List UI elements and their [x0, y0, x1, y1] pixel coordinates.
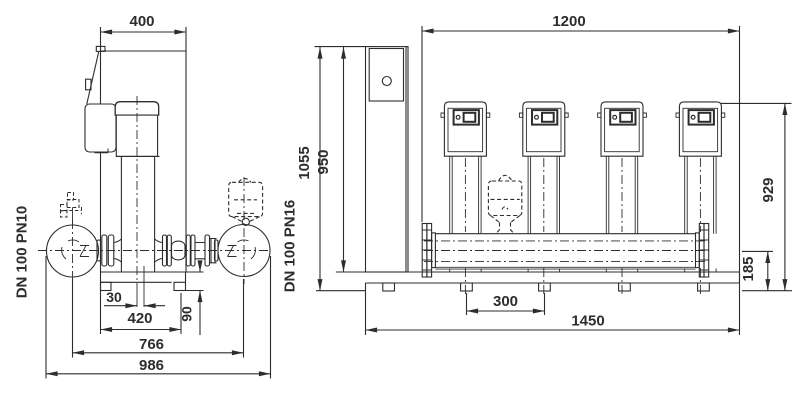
- svg-text:929: 929: [760, 177, 777, 202]
- svg-text:1200: 1200: [552, 13, 585, 30]
- svg-text:30: 30: [106, 289, 122, 305]
- svg-text:1450: 1450: [571, 313, 604, 330]
- svg-text:1055: 1055: [296, 146, 313, 179]
- svg-text:420: 420: [127, 310, 152, 327]
- svg-text:DN 100 PN10: DN 100 PN10: [14, 206, 31, 299]
- svg-text:986: 986: [139, 357, 164, 374]
- svg-text:300: 300: [493, 293, 518, 310]
- svg-text:950: 950: [315, 149, 332, 174]
- svg-text:185: 185: [740, 256, 757, 281]
- svg-text:766: 766: [139, 336, 164, 353]
- svg-text:DN 100 PN16: DN 100 PN16: [282, 200, 299, 293]
- svg-text:400: 400: [129, 13, 154, 30]
